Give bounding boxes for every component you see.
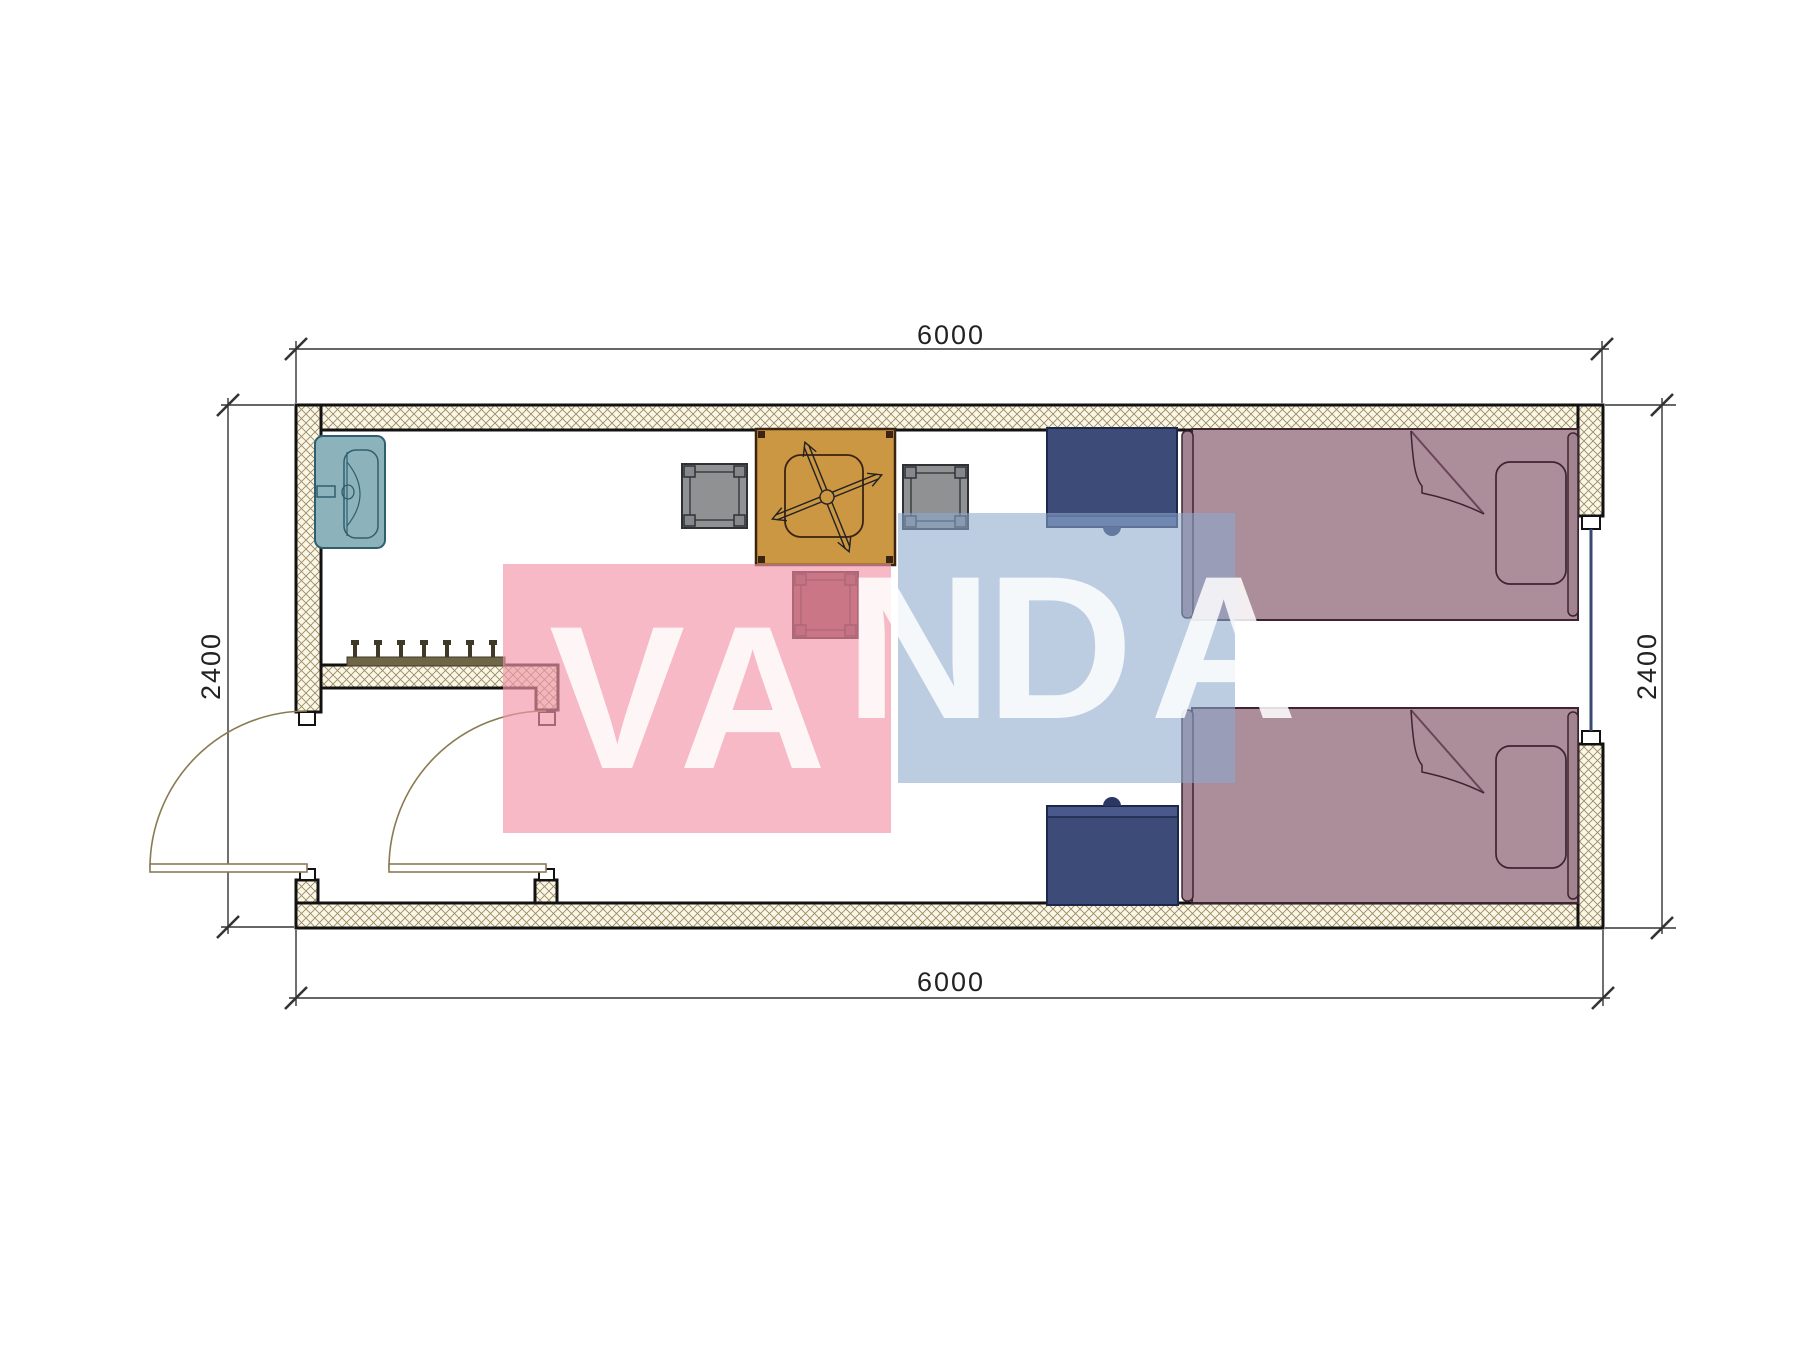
dimension-right-label: 2400 [1632,632,1662,700]
nightstand-knob [1103,797,1121,806]
door-post-left [296,880,318,903]
watermark-letter: V [549,596,685,800]
dimension-top-label: 6000 [917,320,985,350]
sink [315,436,385,548]
wall-top [296,405,1603,430]
pillow [1496,746,1566,868]
bed-headboard [1568,712,1578,899]
chair-left [682,464,747,528]
floor-plan-canvas: 6000 6000 2400 2400 [0,0,1800,1350]
bed-headboard [1568,433,1578,616]
wall-bottom [296,903,1603,928]
watermark-letter: A [1150,546,1297,750]
interior-door-leaf [389,864,546,872]
watermark-letter: A [679,596,826,800]
window-jamb-bottom [1582,731,1600,744]
nightstand-bottom [1047,797,1178,905]
dimension-left-label: 2400 [196,632,226,700]
wall-right-lower [1578,744,1603,928]
watermark-letter: D [986,546,1133,750]
pillow [1496,462,1566,584]
entry-door-leaf [150,864,307,872]
sink-faucet [317,486,335,497]
door-post-right [535,880,557,903]
wall-right-upper [1578,405,1603,516]
dimension-bottom-label: 6000 [917,967,985,997]
watermark-letter: N [845,546,992,750]
dimension-left [217,394,294,938]
window-jamb-top [1582,516,1600,529]
coat-hooks [347,640,505,666]
